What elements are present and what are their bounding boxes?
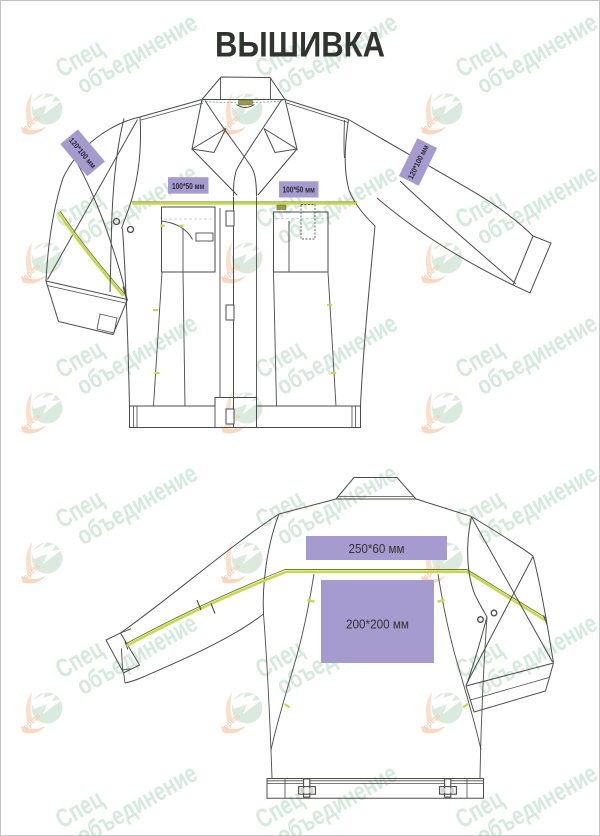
- svg-text:200*200 мм: 200*200 мм: [346, 617, 409, 631]
- svg-text:100*50 мм: 100*50 мм: [172, 182, 205, 191]
- svg-text:100*50 мм: 100*50 мм: [282, 186, 315, 195]
- svg-text:250*60 мм: 250*60 мм: [349, 542, 405, 556]
- svg-text:ВЫШИВКА: ВЫШИВКА: [215, 26, 385, 65]
